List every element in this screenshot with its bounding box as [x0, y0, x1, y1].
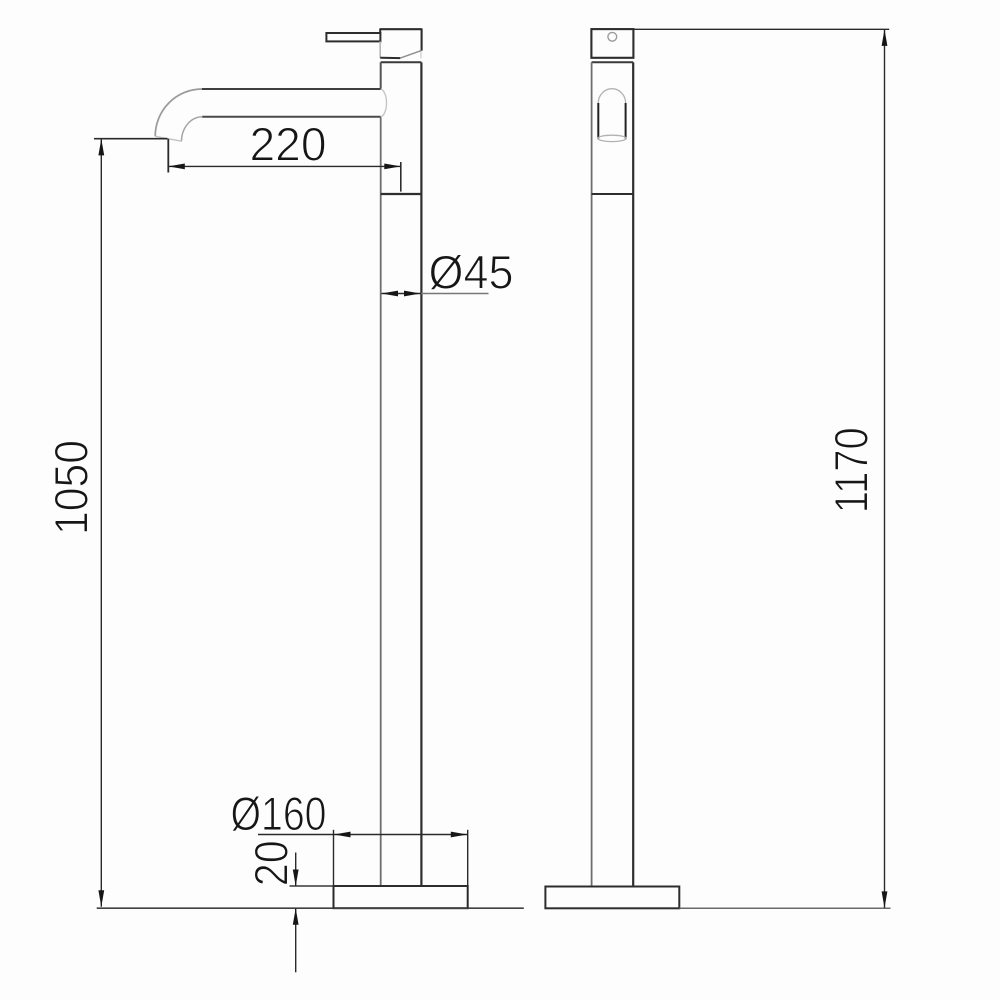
svg-text:1170: 1170	[826, 427, 879, 513]
svg-text:20: 20	[245, 840, 298, 886]
svg-text:Ø160: Ø160	[231, 788, 327, 841]
svg-text:220: 220	[250, 119, 327, 172]
svg-text:1050: 1050	[46, 440, 99, 535]
svg-text:Ø45: Ø45	[429, 247, 514, 300]
